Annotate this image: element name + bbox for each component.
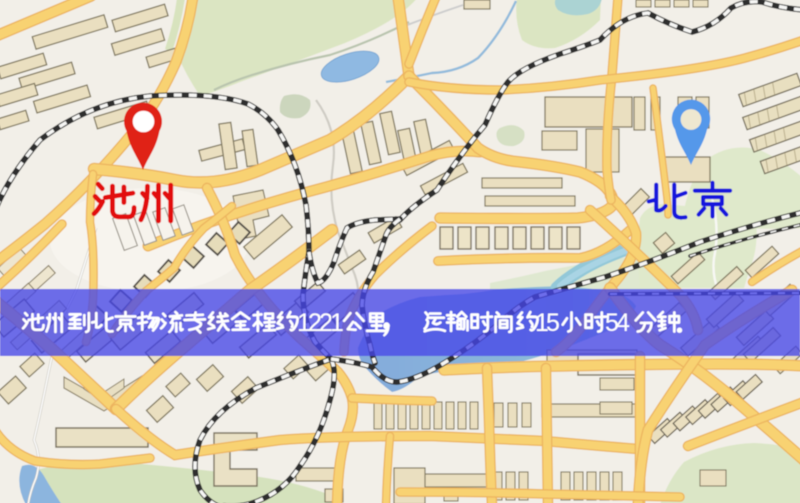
svg-text:1221: 1221 — [297, 309, 343, 337]
svg-text:15: 15 — [535, 309, 559, 337]
svg-text:54: 54 — [605, 309, 630, 337]
